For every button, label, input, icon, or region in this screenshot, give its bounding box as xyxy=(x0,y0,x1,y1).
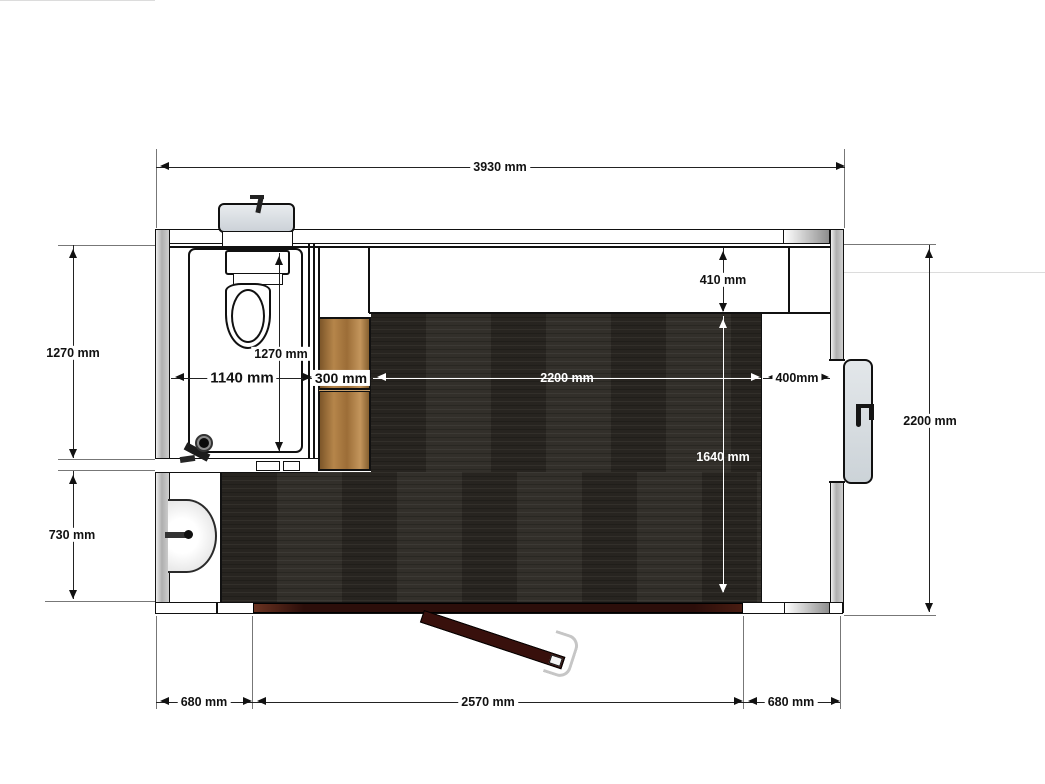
dim-overall-width: 3930 mm xyxy=(470,160,530,174)
ext-bottom-1 xyxy=(156,616,157,709)
cabinet-column-left-line xyxy=(318,247,320,317)
tall-cabinet xyxy=(318,317,371,471)
door-track-part-2 xyxy=(283,461,300,471)
arrow-down-icon xyxy=(925,603,933,616)
door-track-part-1 xyxy=(256,461,280,471)
right-column-line xyxy=(788,247,790,313)
ext-left-lower xyxy=(45,601,155,602)
ext-bottom-3 xyxy=(743,616,744,709)
wall-bottom-joint xyxy=(216,602,218,614)
arrow-left-icon xyxy=(156,162,169,170)
cabinet-divider-line xyxy=(319,388,370,392)
dim-ceiling-gap: 410 mm xyxy=(697,273,750,287)
toilet-bowl-rim xyxy=(231,289,265,343)
arrow-down-icon xyxy=(275,442,283,455)
arrow-left-icon xyxy=(171,373,184,381)
faucet-knob-icon xyxy=(184,530,193,539)
arrow-up-icon xyxy=(925,245,933,258)
arrow-left-icon xyxy=(373,373,386,381)
ext-right-lower xyxy=(844,615,936,616)
dim-bottom-right: 680 mm xyxy=(765,695,818,709)
door-sill xyxy=(253,603,743,613)
entry-door-leaf xyxy=(420,610,565,669)
arrow-up-icon xyxy=(69,471,77,484)
arrow-up-icon xyxy=(69,245,77,258)
dim-bath-depth: 1270 mm xyxy=(251,347,311,361)
window-handle-prong-right xyxy=(869,404,874,420)
wall-bottom-glazed-segment xyxy=(784,602,830,614)
floor-right-edge-line xyxy=(761,313,763,602)
floor-plan-canvas: 3930 mm 1270 mm 730 mm 2200 mm 680 mm 25… xyxy=(0,0,1045,784)
arrow-up-icon xyxy=(719,247,727,260)
arrow-down-icon xyxy=(69,449,77,462)
cistern-flange xyxy=(222,231,293,247)
dim-floor-depth: 1640 mm xyxy=(693,450,753,464)
dim-right-overall: 2200 mm xyxy=(900,414,960,428)
wall-top-glazed-segment xyxy=(783,229,830,244)
door-end-cap xyxy=(549,654,563,666)
arrow-left-icon xyxy=(156,697,169,705)
dim-cabinet-width: 300 mm xyxy=(312,370,370,386)
arrow-up-icon xyxy=(719,315,727,328)
ext-top-left xyxy=(156,149,157,228)
arrow-up-icon xyxy=(275,252,283,265)
dim-bottom-door: 2570 mm xyxy=(458,695,518,709)
page-artifact-line-right xyxy=(844,272,1045,273)
dim-floor-width: 2200 mm xyxy=(537,371,597,385)
arrow-left-icon xyxy=(253,697,266,705)
arrow-down-icon xyxy=(69,590,77,603)
arrow-right-icon xyxy=(836,162,849,170)
dimline-right-overall xyxy=(929,245,930,612)
arrow-down-icon xyxy=(719,303,727,316)
floor-drain-core xyxy=(199,438,209,448)
dim-left-lower: 730 mm xyxy=(46,528,99,542)
arrow-right-icon xyxy=(831,697,844,705)
arrow-down-icon xyxy=(719,584,727,597)
ext-top-right xyxy=(844,149,845,228)
arrow-right-icon xyxy=(751,373,764,381)
page-artifact-line-left xyxy=(0,0,155,1)
dim-bath-width: 1140 mm xyxy=(207,369,276,386)
dim-side-gap: 400mm xyxy=(772,371,821,385)
ext-bottom-2 xyxy=(252,616,253,709)
cabinet-column-right-line xyxy=(368,247,370,313)
arrow-left-icon xyxy=(744,697,757,705)
ext-bottom-4 xyxy=(840,616,841,709)
bath-wall-line-inner xyxy=(313,244,315,473)
dim-left-upper: 1270 mm xyxy=(43,346,103,360)
dark-floor-lower xyxy=(220,472,762,602)
dim-bottom-left: 680 mm xyxy=(178,695,231,709)
ext-right-upper xyxy=(844,244,936,245)
window-handle-prong-left xyxy=(856,404,861,427)
